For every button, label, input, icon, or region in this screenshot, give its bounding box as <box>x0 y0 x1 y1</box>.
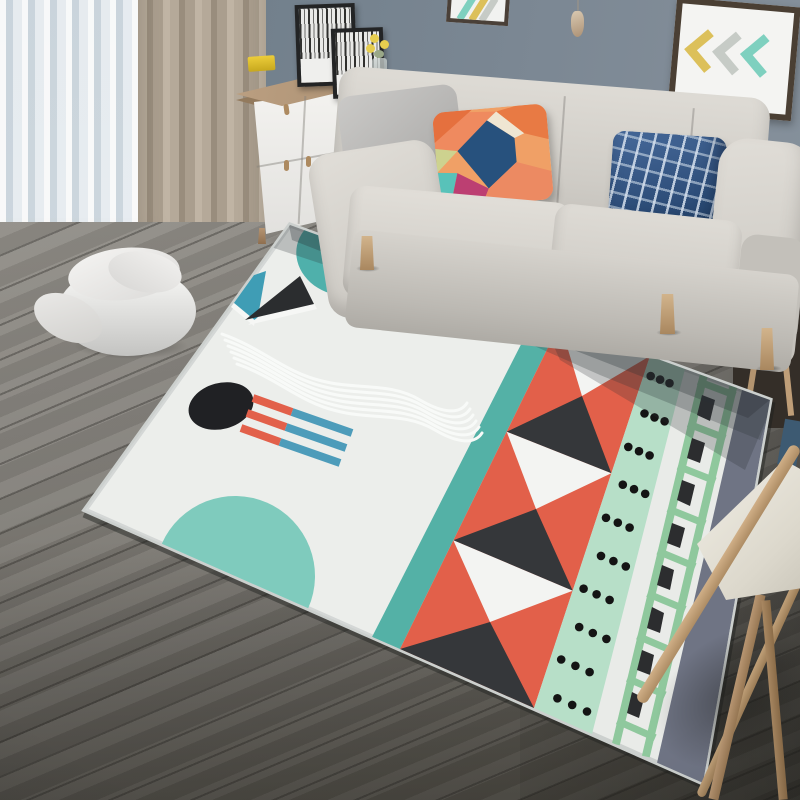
living-room-scene <box>0 0 800 800</box>
sofa-leg <box>360 236 374 270</box>
sofa-leg <box>660 294 675 334</box>
sofa-leg <box>760 328 774 370</box>
